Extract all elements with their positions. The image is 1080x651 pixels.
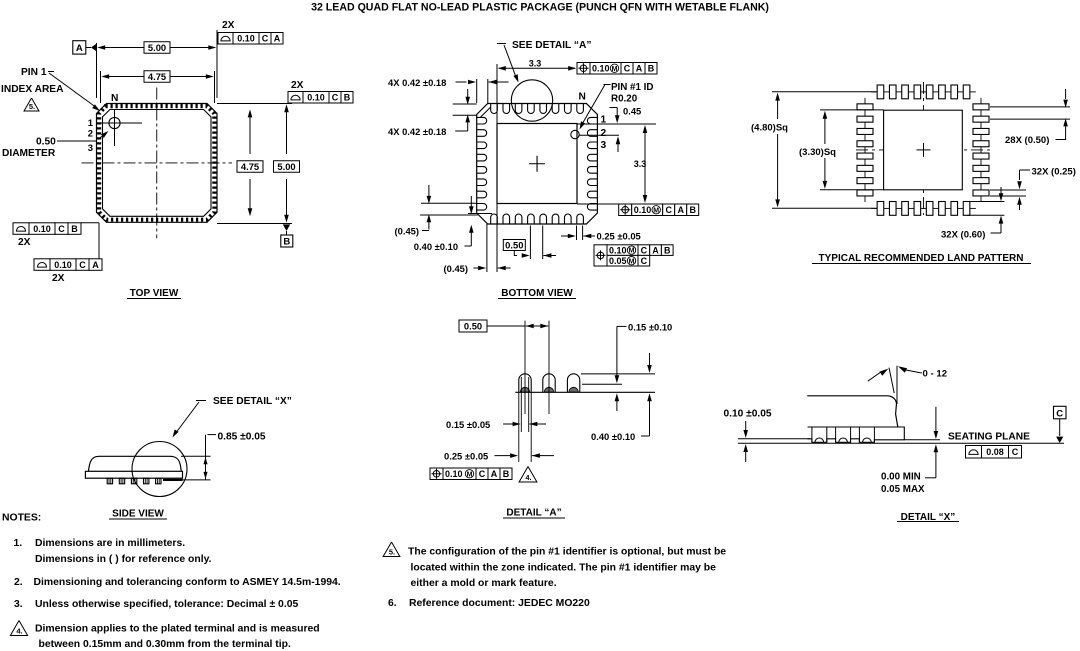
svg-text:2X: 2X xyxy=(52,273,65,284)
svg-text:R0.20: R0.20 xyxy=(611,94,638,105)
svg-text:C: C xyxy=(332,92,339,102)
svg-text:2X: 2X xyxy=(291,80,304,91)
svg-text:C: C xyxy=(1012,447,1019,457)
svg-text:0.10 ±0.05: 0.10 ±0.05 xyxy=(724,409,772,420)
svg-text:0.08: 0.08 xyxy=(986,447,1004,457)
svg-text:A: A xyxy=(274,33,281,43)
svg-text:located within the zone indica: located within the zone indicated. The p… xyxy=(411,563,717,574)
svg-text:(3.30)Sq: (3.30)Sq xyxy=(799,147,836,158)
svg-text:0 - 12: 0 - 12 xyxy=(923,369,948,380)
svg-text:0.40 ±0.10: 0.40 ±0.10 xyxy=(414,241,458,252)
svg-text:B: B xyxy=(503,469,510,479)
svg-text:2: 2 xyxy=(88,129,93,140)
svg-text:4X 0.42 ±0.18: 4X 0.42 ±0.18 xyxy=(388,126,446,137)
svg-text:0.10: 0.10 xyxy=(592,63,610,73)
svg-text:either a mold or mark feature.: either a mold or mark feature. xyxy=(411,578,557,589)
svg-text:0.50: 0.50 xyxy=(36,137,56,148)
svg-text:The configuration of the pin #: The configuration of the pin #1 identifi… xyxy=(408,547,726,558)
svg-text:A: A xyxy=(652,245,659,255)
svg-text:5.00: 5.00 xyxy=(277,161,295,172)
svg-text:Dimensions in ( ) for refere: Dimensions in ( ) for reference only. xyxy=(35,554,212,565)
svg-text:(4.80)Sq: (4.80)Sq xyxy=(751,123,788,134)
svg-text:DETAIL “A”: DETAIL “A” xyxy=(506,508,561,519)
svg-text:28X (0.50): 28X (0.50) xyxy=(1005,135,1049,146)
svg-text:Dimensioning and tolerancing c: Dimensioning and tolerancing conform to … xyxy=(34,577,341,588)
svg-text:C: C xyxy=(262,33,269,43)
svg-text:0.45: 0.45 xyxy=(623,106,641,117)
svg-text:NOTES:: NOTES: xyxy=(2,513,41,524)
svg-text:4.75: 4.75 xyxy=(148,71,166,82)
svg-text:0.25 ±0.05: 0.25 ±0.05 xyxy=(444,451,488,462)
svg-text:1: 1 xyxy=(88,118,94,129)
svg-text:SIDE VIEW: SIDE VIEW xyxy=(112,509,164,520)
svg-text:4X 0.42 ±0.18: 4X 0.42 ±0.18 xyxy=(388,77,446,88)
svg-text:PIN #1 ID: PIN #1 ID xyxy=(611,82,653,93)
svg-text:Dimensions are in millimeters.: Dimensions are in millimeters. xyxy=(35,538,185,549)
svg-text:between 0.15mm and 0.30mm from: between 0.15mm and 0.30mm from the termi… xyxy=(39,639,291,650)
svg-text:SEATING PLANE: SEATING PLANE xyxy=(948,432,1030,443)
svg-text:M: M xyxy=(612,66,618,73)
svg-text:A: A xyxy=(677,205,684,215)
svg-text:5.: 5. xyxy=(389,548,395,557)
svg-text:0.50: 0.50 xyxy=(464,320,482,331)
svg-text:INDEX AREA: INDEX AREA xyxy=(1,84,64,95)
svg-text:0.85 ±0.05: 0.85 ±0.05 xyxy=(218,432,266,443)
svg-text:0.05 MAX: 0.05 MAX xyxy=(881,484,925,495)
svg-text:3.3: 3.3 xyxy=(634,159,647,169)
svg-text:6.: 6. xyxy=(388,598,397,609)
svg-text:M: M xyxy=(653,207,659,214)
svg-text:C: C xyxy=(641,245,648,255)
svg-text:0.10: 0.10 xyxy=(609,245,627,255)
svg-text:0.00 MIN: 0.00 MIN xyxy=(881,472,921,483)
svg-text:5.: 5. xyxy=(29,102,35,111)
svg-text:1.: 1. xyxy=(14,538,23,549)
svg-text:A: A xyxy=(636,63,643,73)
svg-text:0.40 ±0.10: 0.40 ±0.10 xyxy=(591,431,635,442)
svg-text:2X: 2X xyxy=(18,237,31,248)
svg-text:32 LEAD QUAD FLAT NO-LEAD PLAS: 32 LEAD QUAD FLAT NO-LEAD PLASTIC PACKAG… xyxy=(311,2,769,14)
svg-text:0.50: 0.50 xyxy=(505,239,523,250)
svg-text:A: A xyxy=(92,260,99,270)
svg-text:2: 2 xyxy=(601,128,607,139)
svg-text:C: C xyxy=(79,260,86,270)
svg-text:A: A xyxy=(76,43,83,54)
svg-text:0.10: 0.10 xyxy=(54,260,72,270)
svg-text:C: C xyxy=(624,63,631,73)
svg-text:C: C xyxy=(641,256,648,266)
svg-text:0.10: 0.10 xyxy=(445,469,463,479)
svg-text:5.00: 5.00 xyxy=(148,42,166,53)
svg-text:3.: 3. xyxy=(14,599,23,610)
svg-text:C: C xyxy=(665,205,672,215)
svg-text:B: B xyxy=(344,92,351,102)
svg-text:B: B xyxy=(664,245,671,255)
svg-text:N: N xyxy=(111,93,118,104)
svg-text:M: M xyxy=(629,248,635,255)
svg-text:2.: 2. xyxy=(14,577,23,588)
svg-text:DIAMETER: DIAMETER xyxy=(2,148,56,159)
svg-text:0.10: 0.10 xyxy=(33,224,51,234)
svg-text:Dimension applies to the plate: Dimension applies to the plated terminal… xyxy=(35,624,320,635)
svg-text:0.10: 0.10 xyxy=(307,92,325,102)
svg-text:N: N xyxy=(579,92,586,103)
svg-text:M: M xyxy=(467,471,473,478)
svg-text:PIN 1: PIN 1 xyxy=(21,67,47,78)
svg-text:2X: 2X xyxy=(222,20,235,31)
svg-text:4.75: 4.75 xyxy=(241,161,259,172)
svg-text:0.05: 0.05 xyxy=(609,256,627,266)
svg-text:C: C xyxy=(1056,408,1063,419)
svg-text:A: A xyxy=(491,469,498,479)
svg-text:BOTTOM VIEW: BOTTOM VIEW xyxy=(501,288,573,299)
svg-text:B: B xyxy=(648,63,655,73)
svg-text:Unless otherwise specified, to: Unless otherwise specified, tolerance: D… xyxy=(35,599,298,610)
svg-text:B: B xyxy=(71,224,78,234)
svg-text:M: M xyxy=(629,258,635,265)
svg-text:32X (0.25): 32X (0.25) xyxy=(1032,167,1076,178)
svg-text:3: 3 xyxy=(601,140,607,151)
svg-text:0.25 ±0.05: 0.25 ±0.05 xyxy=(597,231,641,242)
svg-text:SEE DETAIL “A”: SEE DETAIL “A” xyxy=(512,40,591,51)
svg-text:0.15 ±0.10: 0.15 ±0.10 xyxy=(628,322,672,333)
svg-text:0.10: 0.10 xyxy=(237,33,255,43)
svg-text:SEE DETAIL “X”: SEE DETAIL “X” xyxy=(213,396,292,407)
svg-text:C: C xyxy=(479,469,486,479)
svg-text:32X (0.60): 32X (0.60) xyxy=(941,230,985,241)
svg-text:B: B xyxy=(689,205,696,215)
svg-text:TYPICAL RECOMMENDED LAND PATTE: TYPICAL RECOMMENDED LAND PATTERN xyxy=(819,253,1024,264)
svg-text:3: 3 xyxy=(88,143,93,154)
svg-text:3.3: 3.3 xyxy=(529,59,542,69)
svg-text:(0.45): (0.45) xyxy=(444,263,469,274)
svg-text:0.10: 0.10 xyxy=(634,205,652,215)
svg-text:4.: 4. xyxy=(16,627,22,636)
svg-text:0.15 ±0.05: 0.15 ±0.05 xyxy=(446,419,490,430)
svg-text:4.: 4. xyxy=(525,473,531,482)
svg-text:B: B xyxy=(283,237,290,248)
svg-text:(0.45): (0.45) xyxy=(395,226,420,237)
svg-text:C: C xyxy=(58,224,65,234)
svg-text:Reference document: JEDEC MO22: Reference document: JEDEC MO220 xyxy=(409,598,590,609)
svg-text:TOP VIEW: TOP VIEW xyxy=(130,288,179,299)
